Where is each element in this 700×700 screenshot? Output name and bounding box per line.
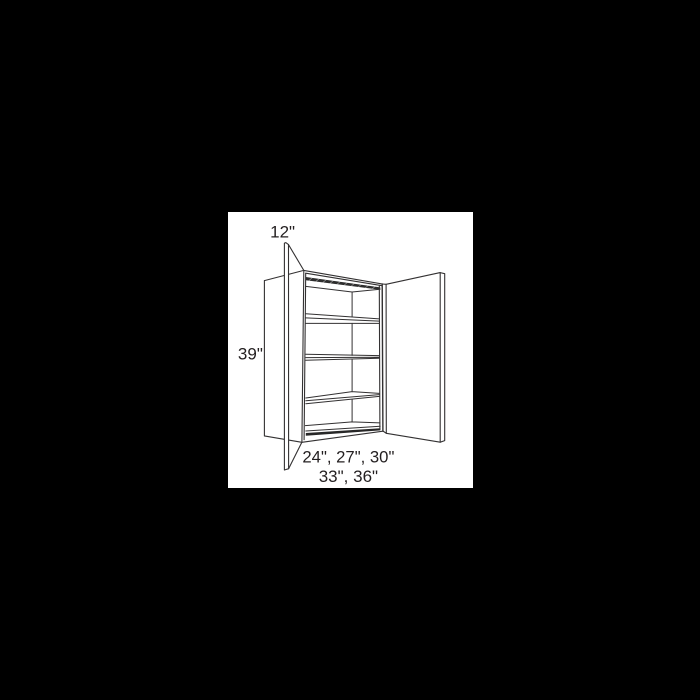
svg-text:39": 39"	[238, 345, 263, 364]
svg-text:12": 12"	[270, 222, 295, 241]
svg-text:33", 36": 33", 36"	[319, 467, 378, 486]
svg-text:24", 27", 30": 24", 27", 30"	[302, 447, 394, 466]
